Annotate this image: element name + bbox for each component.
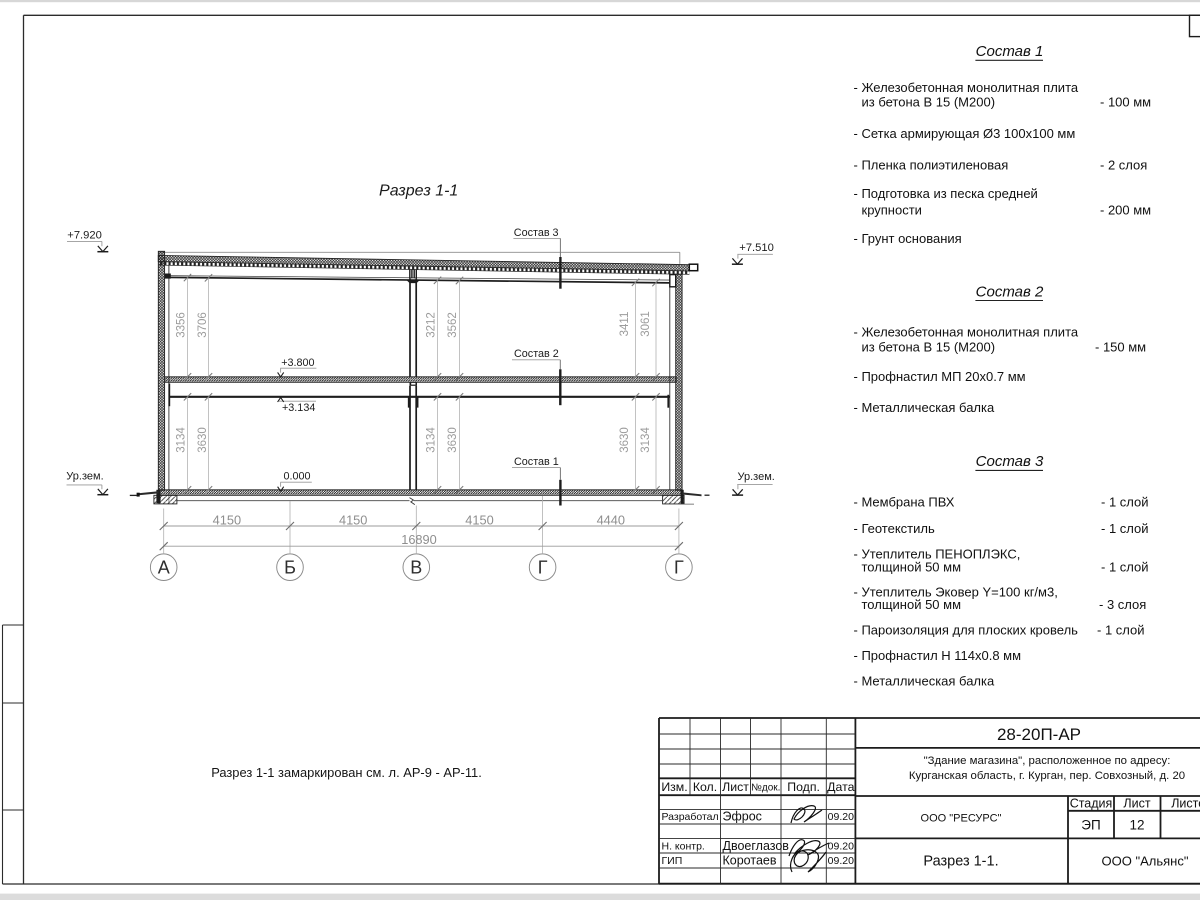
- svg-text:+3.134: +3.134: [282, 402, 315, 414]
- svg-text:- Мембрана ПВХ: - Мембрана ПВХ: [854, 495, 955, 510]
- svg-text:Г: Г: [538, 558, 548, 578]
- svg-text:А: А: [158, 558, 170, 578]
- svg-text:3630: 3630: [197, 427, 209, 453]
- svg-text:- 3 слоя: - 3 слоя: [1099, 597, 1146, 612]
- svg-text:Состав 3: Состав 3: [976, 453, 1044, 470]
- svg-text:12: 12: [1129, 817, 1144, 832]
- svg-text:- 150 мм: - 150 мм: [1095, 339, 1146, 354]
- svg-text:из бетона В 15 (М200): из бетона В 15 (М200): [862, 339, 996, 354]
- svg-text:Разрез 1-1.: Разрез 1-1.: [923, 854, 998, 870]
- svg-text:- Сетка армирующая Ø3 100х100: - Сетка армирующая Ø3 100х100 мм: [854, 126, 1076, 141]
- svg-text:4150: 4150: [213, 512, 241, 527]
- svg-text:- Грунт основания: - Грунт основания: [854, 231, 962, 246]
- svg-text:Состав 3: Состав 3: [514, 227, 559, 239]
- svg-text:ЭП: ЭП: [1081, 817, 1100, 832]
- svg-text:4440: 4440: [597, 512, 625, 527]
- svg-text:- Профнастил Н 114х0.8 мм: - Профнастил Н 114х0.8 мм: [854, 648, 1022, 663]
- svg-text:Дата: Дата: [827, 780, 854, 794]
- svg-text:+3.800: +3.800: [281, 357, 314, 369]
- svg-text:из бетона В 15 (М200): из бетона В 15 (М200): [862, 95, 996, 110]
- svg-text:0.000: 0.000: [284, 471, 311, 483]
- svg-text:толщиной 50 мм: толщиной 50 мм: [862, 597, 962, 612]
- svg-text:В: В: [410, 558, 422, 578]
- svg-text:Эфрос: Эфрос: [723, 809, 762, 823]
- svg-text:3134: 3134: [176, 427, 188, 453]
- svg-text:Коротаев: Коротаев: [723, 853, 777, 867]
- svg-text:- 1 слой: - 1 слой: [1101, 559, 1149, 574]
- svg-text:28-20П-АР: 28-20П-АР: [997, 725, 1081, 744]
- svg-text:Б: Б: [284, 558, 296, 578]
- svg-text:Двоеглазов: Двоеглазов: [723, 839, 790, 853]
- svg-text:- Металлическая балка: - Металлическая балка: [854, 400, 995, 415]
- svg-text:Изм.: Изм.: [661, 780, 687, 794]
- svg-text:3630: 3630: [447, 427, 459, 453]
- svg-text:Разработал: Разработал: [662, 811, 719, 823]
- svg-text:ООО "Альянс": ООО "Альянс": [1102, 854, 1189, 869]
- svg-text:№док.: №док.: [751, 782, 780, 793]
- svg-text:Состав 2: Состав 2: [976, 283, 1044, 300]
- svg-text:4150: 4150: [465, 512, 493, 527]
- svg-text:3630: 3630: [619, 427, 631, 453]
- svg-text:- Железобетонная монолитная п: - Железобетонная монолитная плита: [854, 324, 1079, 339]
- svg-text:- Пленка полиэтиленовая: - Пленка полиэтиленовая: [854, 158, 1009, 173]
- svg-text:- Пароизоляция для плоских кро: - Пароизоляция для плоских кровель: [854, 623, 1079, 638]
- svg-text:Состав 1: Состав 1: [976, 43, 1044, 60]
- svg-text:Кол.: Кол.: [693, 780, 717, 794]
- svg-text:Н. контр.: Н. контр.: [662, 841, 705, 853]
- svg-text:- Геотекстиль: - Геотекстиль: [854, 521, 935, 536]
- svg-text:3356: 3356: [176, 312, 188, 338]
- svg-text:Курганская область, г. Курган,: Курганская область, г. Курган, пер. Совх…: [909, 770, 1185, 782]
- svg-text:- 200 мм: - 200 мм: [1100, 203, 1151, 218]
- svg-text:- Металлическая балка: - Металлическая балка: [854, 673, 995, 688]
- svg-text:- Железобетонная монолитная п: - Железобетонная монолитная плита: [854, 80, 1079, 95]
- svg-text:Лист: Лист: [1123, 797, 1150, 811]
- svg-text:крупности: крупности: [862, 203, 922, 218]
- svg-text:09.20: 09.20: [828, 855, 854, 867]
- svg-text:Разрез 1-1 замаркирован см. л.: Разрез 1-1 замаркирован см. л. АР-9 - АР…: [211, 765, 482, 780]
- svg-text:3212: 3212: [425, 312, 437, 338]
- svg-text:Разрез 1-1: Разрез 1-1: [379, 183, 458, 200]
- svg-text:Состав 2: Состав 2: [514, 348, 559, 360]
- svg-text:ООО "РЕСУРС": ООО "РЕСУРС": [921, 813, 1002, 825]
- svg-text:Подп.: Подп.: [787, 780, 820, 794]
- svg-text:3134: 3134: [425, 427, 437, 453]
- svg-text:+7.920: +7.920: [67, 230, 102, 242]
- svg-text:3562: 3562: [447, 312, 459, 338]
- svg-text:Состав 1: Состав 1: [514, 456, 559, 468]
- svg-text:3706: 3706: [197, 312, 209, 338]
- svg-text:3061: 3061: [640, 311, 652, 337]
- svg-text:Ур.зем.: Ур.зем.: [66, 470, 103, 482]
- svg-text:09.20: 09.20: [828, 840, 854, 852]
- svg-text:3134: 3134: [640, 427, 652, 453]
- svg-text:Ур.зем.: Ур.зем.: [738, 471, 775, 483]
- svg-text:- 100 мм: - 100 мм: [1100, 95, 1151, 110]
- svg-text:толщиной 50 мм: толщиной 50 мм: [862, 559, 962, 574]
- svg-text:4150: 4150: [339, 512, 367, 527]
- svg-text:09.20: 09.20: [828, 811, 854, 823]
- svg-text:- 1 слой: - 1 слой: [1101, 495, 1149, 510]
- svg-text:- Профнастил МП 20х0.7 мм: - Профнастил МП 20х0.7 мм: [854, 369, 1026, 384]
- svg-text:"Здание магазина", расположенн: "Здание магазина", расположенное по адре…: [924, 755, 1171, 767]
- svg-text:16890: 16890: [401, 532, 437, 547]
- svg-text:+7.510: +7.510: [739, 242, 774, 254]
- svg-text:ГИП: ГИП: [662, 855, 683, 867]
- svg-text:- 1 слой: - 1 слой: [1097, 623, 1145, 638]
- svg-text:- 2 слоя: - 2 слоя: [1100, 158, 1147, 173]
- svg-text:- 1 слой: - 1 слой: [1101, 521, 1149, 536]
- svg-text:Лист: Лист: [722, 780, 749, 794]
- svg-text:Стадия: Стадия: [1070, 797, 1113, 811]
- svg-text:Листов: Листов: [1171, 797, 1200, 811]
- svg-text:- Подготовка из песка средней: - Подготовка из песка средней: [854, 186, 1038, 201]
- svg-text:3411: 3411: [619, 312, 631, 337]
- svg-text:Г: Г: [674, 558, 684, 578]
